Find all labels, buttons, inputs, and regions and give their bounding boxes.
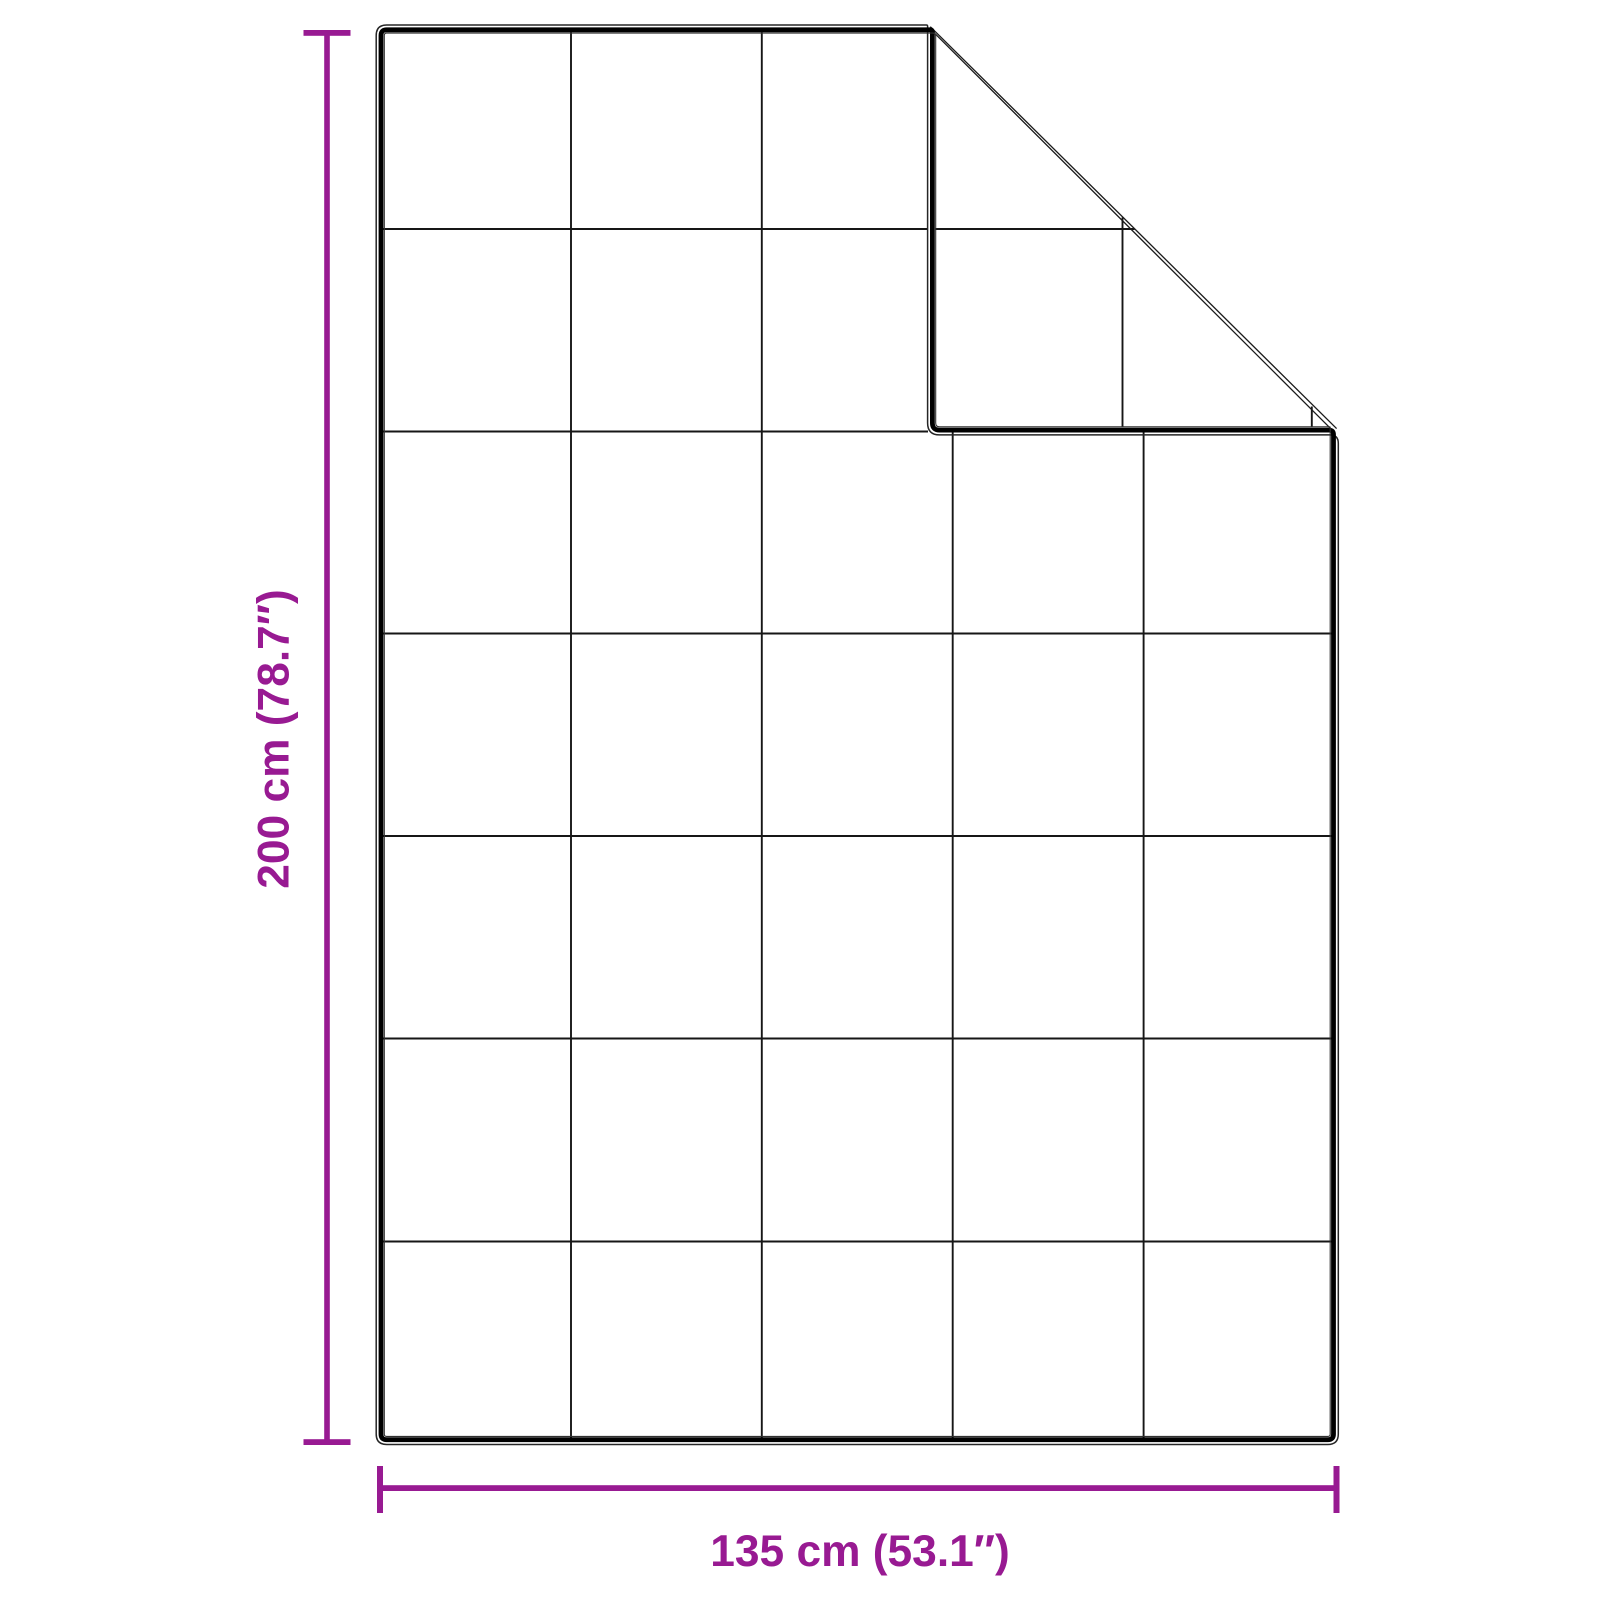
svg-text:200 cm (78.7″): 200 cm (78.7″): [250, 589, 299, 888]
svg-text:135 cm (53.1″): 135 cm (53.1″): [710, 1527, 1009, 1576]
